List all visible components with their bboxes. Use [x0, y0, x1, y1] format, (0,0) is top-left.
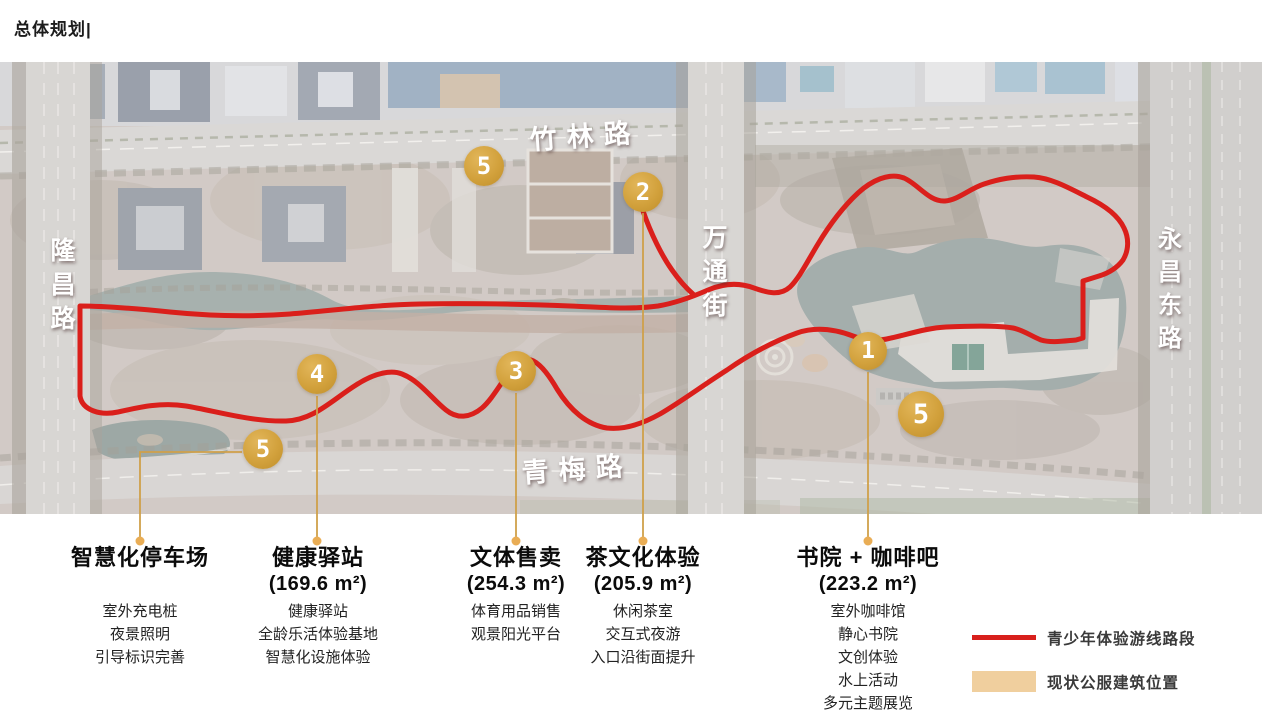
map-marker-5-west: 5	[243, 429, 283, 469]
map-marker-5-east: 5	[898, 391, 944, 437]
callout-item: 入口沿街面提升	[527, 646, 759, 669]
marker-number: 5	[913, 399, 929, 430]
building-swatch	[972, 671, 1036, 692]
callout-title: 茶文化体验	[527, 544, 759, 571]
callout-item: 水上活动	[752, 669, 984, 692]
callout-item: 交互式夜游	[527, 623, 759, 646]
map-marker-5-north: 5	[464, 146, 504, 186]
marker-number: 1	[861, 338, 875, 364]
marker-number: 4	[310, 360, 324, 388]
callout-item: 休闲茶室	[527, 600, 759, 623]
callout-tea-culture: 茶文化体验 (205.9 m²) 休闲茶室 交互式夜游 入口沿街面提升	[527, 544, 759, 669]
legend-label: 青少年体验游线路段	[1047, 627, 1196, 649]
callout-area: (205.9 m²)	[527, 571, 759, 597]
page-title: 总体规划|	[14, 15, 92, 40]
road-label-wantong: 万通街	[695, 224, 731, 326]
map-marker-4: 4	[297, 354, 337, 394]
road-label-zhulin: 竹林路	[528, 111, 641, 158]
route-line-swatch	[972, 635, 1036, 640]
legend-label: 现状公服建筑位置	[1047, 671, 1179, 693]
marker-number: 2	[636, 178, 650, 206]
callout-items: 休闲茶室 交互式夜游 入口沿街面提升	[527, 600, 759, 669]
road-label-yongchang-east: 永昌东路	[1150, 226, 1185, 358]
road-label-qingmei: 青梅路	[520, 444, 633, 491]
callout-item: 多元主题展览	[752, 692, 984, 715]
legend: 青少年体验游线路段 现状公服建筑位置	[972, 627, 1196, 692]
marker-number: 5	[256, 435, 270, 463]
callout-area: (223.2 m²)	[752, 571, 984, 597]
callout-item: 文创体验	[752, 646, 984, 669]
callout-item: 智慧化设施体验	[202, 646, 434, 669]
map-marker-1: 1	[849, 332, 887, 370]
map-marker-2: 2	[623, 172, 663, 212]
map-marker-3: 3	[496, 351, 536, 391]
callout-item: 静心书院	[752, 623, 984, 646]
marker-number: 5	[477, 152, 491, 180]
legend-row-route: 青少年体验游线路段	[972, 627, 1196, 648]
callout-item: 室外咖啡馆	[752, 600, 984, 623]
road-label-longchang: 隆昌路	[43, 237, 79, 339]
callout-title: 书院 + 咖啡吧	[752, 544, 984, 571]
callout-items: 室外咖啡馆 静心书院 文创体验 水上活动 多元主题展览	[752, 600, 984, 715]
marker-number: 3	[509, 357, 523, 385]
callout-academy-cafe: 书院 + 咖啡吧 (223.2 m²) 室外咖啡馆 静心书院 文创体验 水上活动…	[752, 544, 984, 715]
legend-row-buildings: 现状公服建筑位置	[972, 671, 1196, 692]
